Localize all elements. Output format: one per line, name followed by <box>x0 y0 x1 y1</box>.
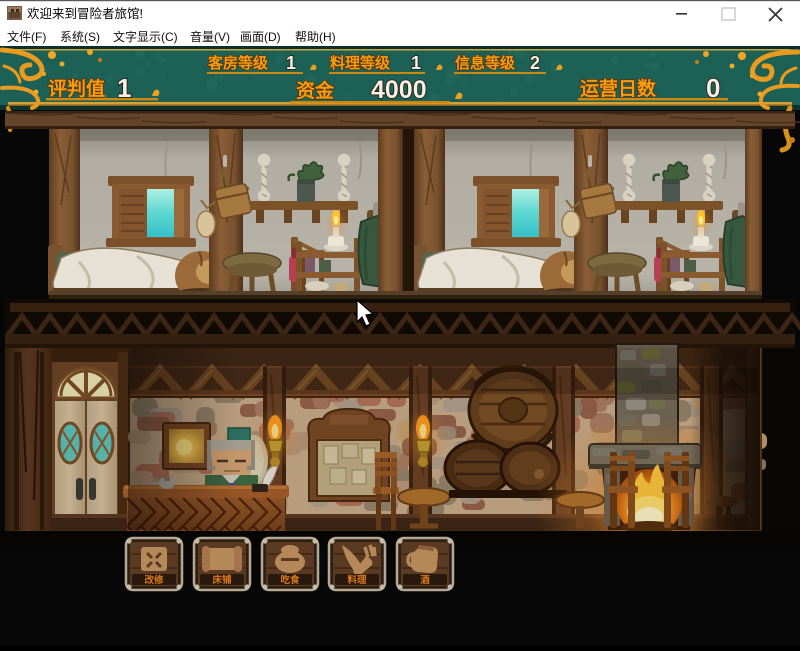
svg-text:床铺: 床铺 <box>212 574 232 586</box>
svg-text:料理: 料理 <box>347 574 367 586</box>
svg-text:2: 2 <box>530 53 540 73</box>
svg-text:1: 1 <box>411 53 421 73</box>
svg-text:文件(F): 文件(F) <box>7 29 46 44</box>
svg-text:料理等级: 料理等级 <box>330 54 391 72</box>
svg-text:画面(D): 画面(D) <box>240 30 281 44</box>
svg-text:评判值: 评判值 <box>48 77 105 100</box>
svg-text:1: 1 <box>286 53 296 73</box>
svg-text:酒: 酒 <box>420 574 430 586</box>
svg-text:帮助(H): 帮助(H) <box>295 30 336 44</box>
svg-text:改修: 改修 <box>144 574 164 586</box>
svg-text:音量(V): 音量(V) <box>190 29 230 44</box>
svg-text:系统(S): 系统(S) <box>60 30 100 44</box>
svg-text:运营日数: 运营日数 <box>580 77 657 100</box>
svg-text:文字显示(C): 文字显示(C) <box>113 29 178 44</box>
svg-text:4000: 4000 <box>371 76 427 104</box>
svg-text:欢迎来到冒险者旅馆!: 欢迎来到冒险者旅馆! <box>27 6 143 21</box>
svg-text:资金: 资金 <box>296 79 335 102</box>
svg-text:吃食: 吃食 <box>280 574 300 586</box>
svg-text:客房等级: 客房等级 <box>207 54 269 72</box>
svg-text:信息等级: 信息等级 <box>455 54 516 72</box>
